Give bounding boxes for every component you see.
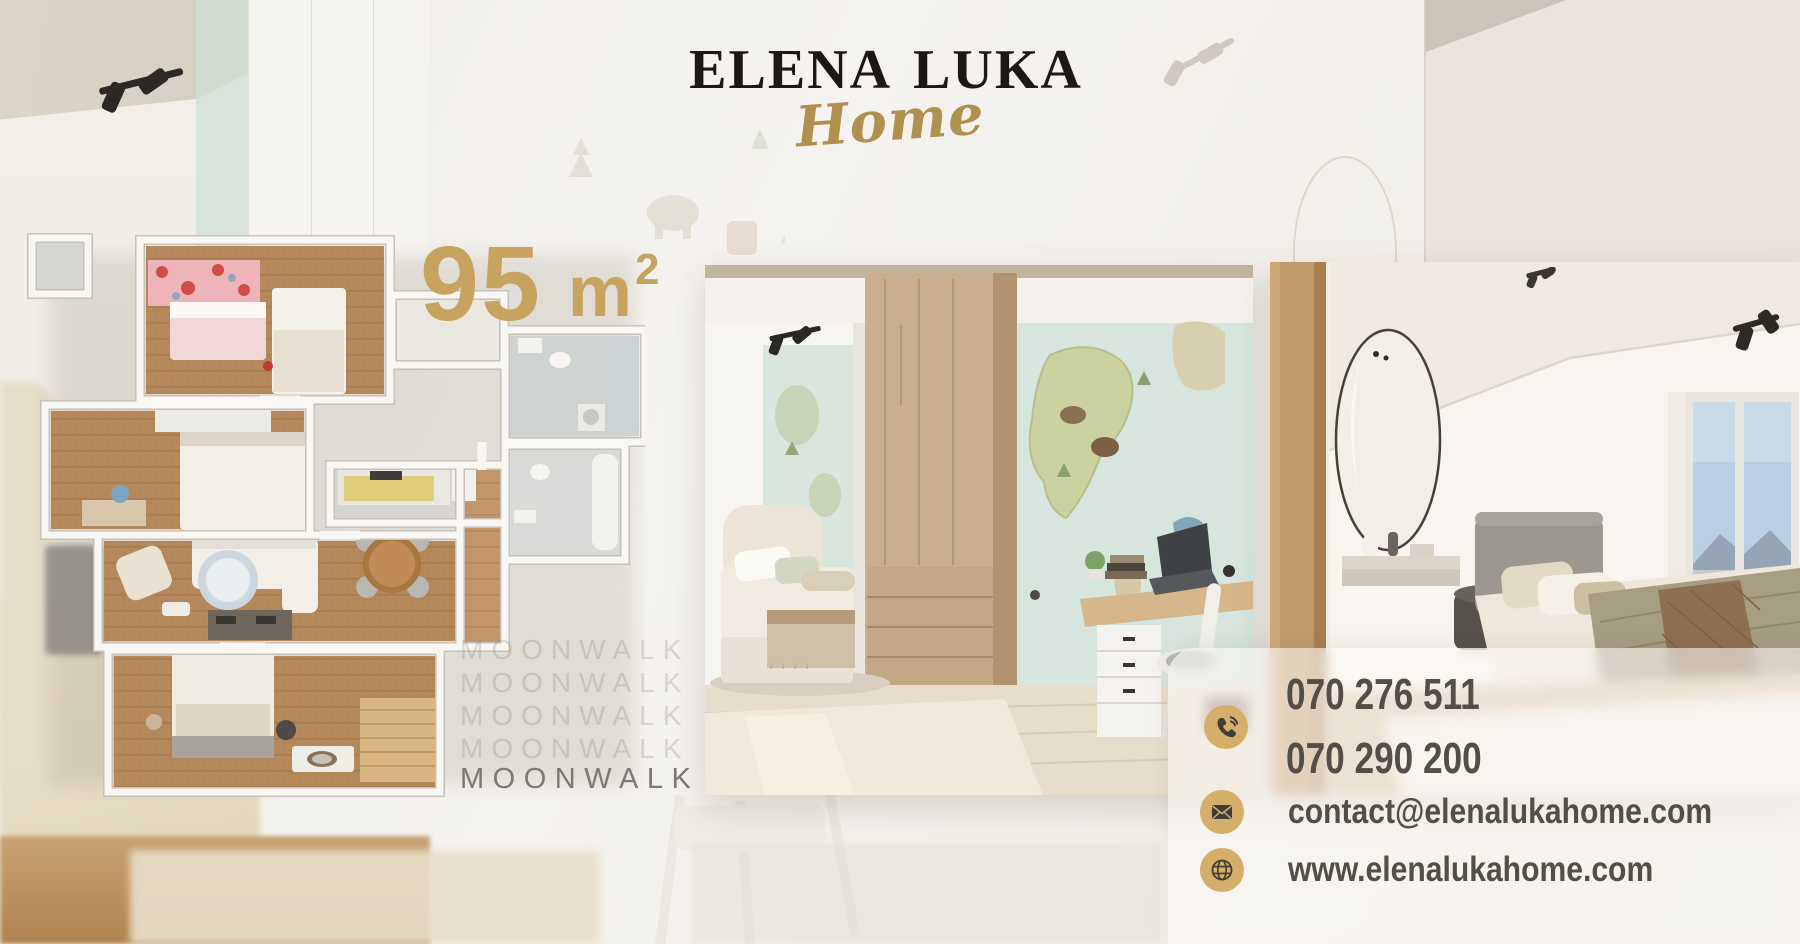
phone-icon [1204,705,1248,749]
background-wall-seam [1424,0,1426,268]
envelope-icon [1200,790,1244,834]
phone-secondary: 070 290 200 [1286,734,1482,784]
ceiling-spotlight-icon [88,48,208,138]
area-exponent: 2 [635,248,659,292]
area-number: 95 [420,234,542,334]
dining-set [356,530,429,598]
contact-row-phones: 070 276 511 070 290 200 [1204,670,1531,784]
ceiling-spotlight-faint-icon [1156,26,1251,111]
background-wall-right [1426,0,1800,268]
contact-row-email: contact@elenalukahome.com [1200,790,1781,834]
flyer-canvas: 95 m 2 ELENA LUKA Home MOONWALK MOONWALK… [0,0,1800,944]
globe-icon [1200,848,1244,892]
contact-panel: 070 276 511 070 290 200 contact@elenaluk… [1168,648,1800,944]
contact-email: contact@elenalukahome.com [1288,792,1712,832]
phone-primary: 070 276 511 [1286,670,1482,720]
oval-mirror [1336,330,1440,550]
background-chair-ghost [620,795,920,944]
area-label: 95 m 2 [420,234,659,334]
background-rug [130,850,600,944]
background-arch-mirror-outline [1293,156,1397,268]
contact-row-website: www.elenalukahome.com [1200,848,1713,892]
contact-website: www.elenalukahome.com [1288,850,1653,890]
brand-logo-script: Home [793,81,986,160]
area-unit: m [568,256,632,328]
wardrobe [865,273,1017,687]
